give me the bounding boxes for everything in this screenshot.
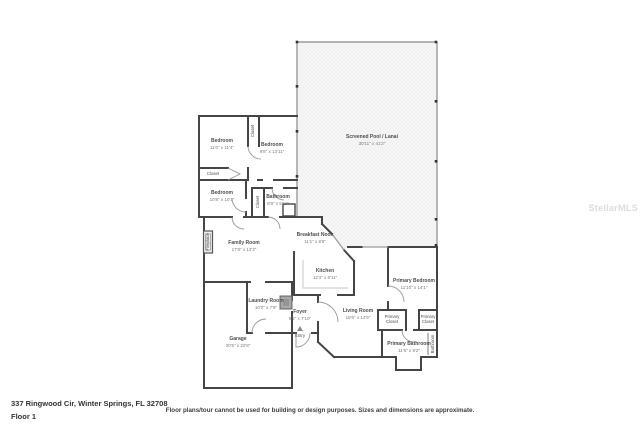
floorplan-drawing xyxy=(0,0,640,426)
room-name: Bathroom xyxy=(266,194,290,201)
room-name: Bedroom xyxy=(210,138,234,145)
room-dims: 10'8" x 10'1" xyxy=(210,196,235,202)
room-dims: 17'8" x 13'3" xyxy=(228,246,259,252)
room-name: Closet xyxy=(207,171,219,177)
disclaimer-text: Floor plans/tour cannot be used for buil… xyxy=(120,407,520,414)
room-name: Bedroom xyxy=(260,142,284,149)
room-label-kitchen: Kitchen 12'4" x 8'11" xyxy=(313,268,337,280)
room-label-primary-bedroom: Primary Bedroom 11'10" x 14'1" xyxy=(393,278,435,290)
room-dims: 11'6" x 8'2" xyxy=(387,347,431,353)
room-name: Garage xyxy=(226,336,251,343)
room-label-closet-a: Closet xyxy=(250,125,256,137)
room-label-garage: Garage 20'5" x 22'8" xyxy=(226,336,251,348)
room-dims: 10'0" x 7'9" xyxy=(248,304,283,310)
room-name: Entry xyxy=(295,333,305,339)
room-label-bedroom-1: Bedroom 11'0" x 11'4" xyxy=(210,138,234,150)
room-name: Primary Closet xyxy=(379,315,405,325)
room-label-fireplace: Fireplace xyxy=(205,233,211,251)
room-label-pool: Screened Pool / Lanai 30'11" x 41'2" xyxy=(346,134,398,146)
floorplan-page: Bedroom 11'0" x 11'4" Closet Bedroom 9'8… xyxy=(0,0,640,426)
room-name: Primary Closet xyxy=(415,315,441,325)
room-dims: 12'4" x 8'11" xyxy=(313,274,337,280)
room-label-entry: Entry xyxy=(295,333,305,339)
room-name: Primary Bedroom xyxy=(393,278,435,285)
room-label-foyer: Foyer 5'2" x 7'10" xyxy=(289,309,311,321)
room-name: Primary Bathroom xyxy=(387,341,431,348)
room-name: Closet xyxy=(250,125,256,137)
room-name: Bathroom xyxy=(430,335,436,354)
room-label-breakfast-nook: Breakfast Nook 11'1" x 8'8" xyxy=(297,232,334,244)
room-label-laundry-room: Laundry Room 10'0" x 7'9" xyxy=(248,298,283,310)
room-dims: 11'0" x 11'4" xyxy=(210,144,234,150)
room-dims: 30'11" x 41'2" xyxy=(346,140,398,146)
room-label-primary-bathroom: Primary Bathroom 11'6" x 8'2" xyxy=(387,341,431,353)
room-label-living-room: Living Room 18'6" x 14'5" xyxy=(343,308,373,320)
room-name: Living Room xyxy=(343,308,373,315)
room-dims: 20'5" x 22'8" xyxy=(226,342,251,348)
room-label-family-room: Family Room 17'8" x 13'3" xyxy=(228,240,259,252)
room-label-bath-wc: Bathroom xyxy=(430,335,436,354)
room-name: Breakfast Nook xyxy=(297,232,334,239)
room-dims: 18'6" x 14'5" xyxy=(343,314,373,320)
room-label-bedroom-2: Bedroom 9'8" x 13'11" xyxy=(260,142,284,154)
mls-watermark: StellarMLS xyxy=(588,203,638,213)
room-name: Screened Pool / Lanai xyxy=(346,134,398,141)
room-dims: 11'10" x 14'1" xyxy=(393,284,435,290)
room-label-closet-hall: Closet xyxy=(207,171,219,177)
room-dims: 8'8" x 5'11" xyxy=(266,200,290,206)
room-dims: 11'1" x 8'8" xyxy=(297,238,334,244)
room-label-bathroom: Bathroom 8'8" x 5'11" xyxy=(266,194,290,206)
room-name: Family Room xyxy=(228,240,259,247)
room-name: Kitchen xyxy=(313,268,337,275)
room-dims: 9'8" x 13'11" xyxy=(260,148,284,154)
room-label-primary-closet-a: Primary Closet xyxy=(379,315,405,325)
room-name: Bedroom xyxy=(210,190,235,197)
floor-label: Floor 1 xyxy=(11,412,36,421)
room-label-closet-b: Closet xyxy=(255,196,261,208)
room-dims: 5'2" x 7'10" xyxy=(289,315,311,321)
room-name: Closet xyxy=(255,196,261,208)
entry-marker-icon xyxy=(297,326,303,331)
room-name: Fireplace xyxy=(205,233,211,251)
room-label-primary-closet-b: Primary Closet xyxy=(415,315,441,325)
room-name: Laundry Room xyxy=(248,298,283,305)
room-label-bedroom-3: Bedroom 10'8" x 10'1" xyxy=(210,190,235,202)
